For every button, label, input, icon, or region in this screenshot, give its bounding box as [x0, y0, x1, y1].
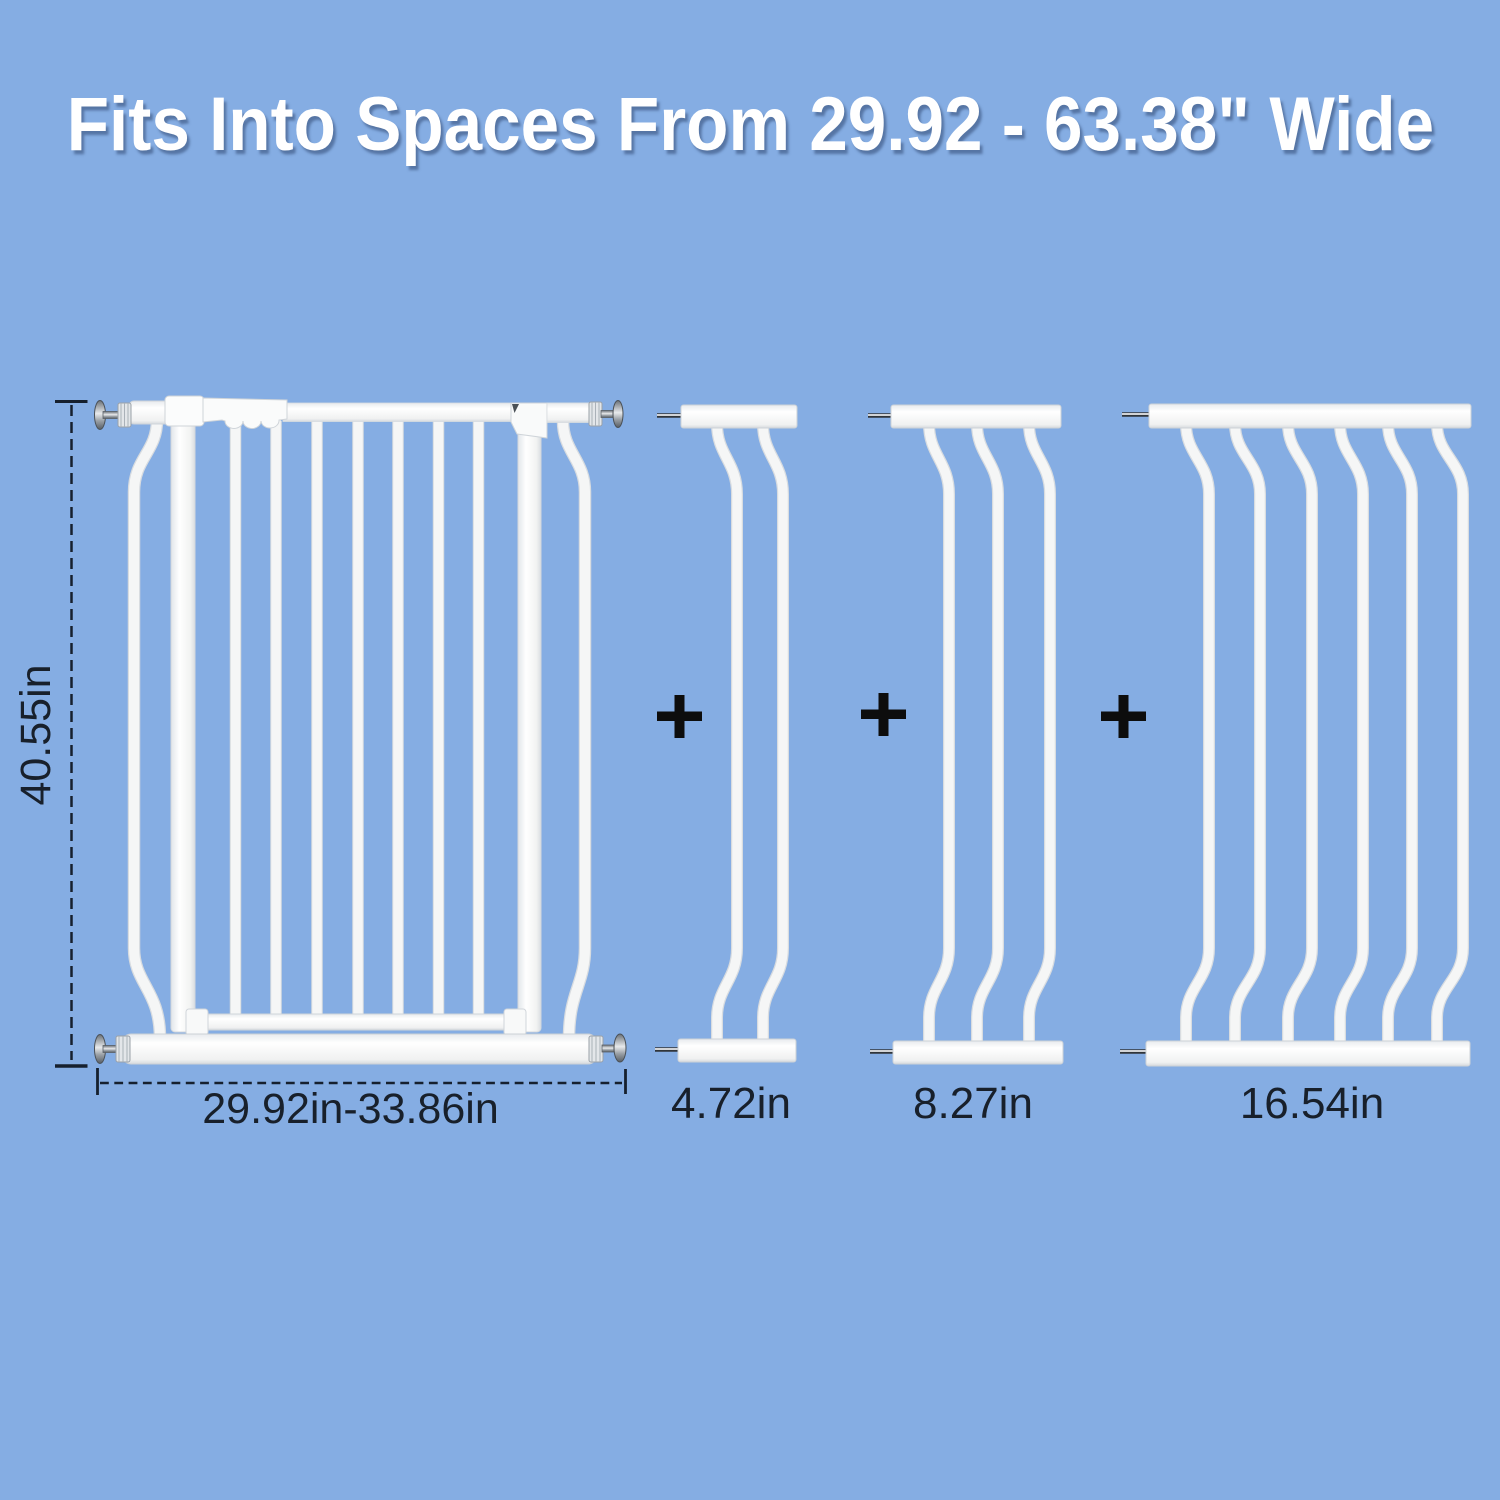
svg-text:16.54in: 16.54in — [1240, 1079, 1384, 1128]
svg-text:40.55in: 40.55in — [12, 664, 60, 805]
svg-text:4.72in: 4.72in — [671, 1079, 791, 1128]
svg-text:8.27in: 8.27in — [913, 1079, 1033, 1128]
svg-text:29.92in-33.86in: 29.92in-33.86in — [202, 1085, 498, 1133]
